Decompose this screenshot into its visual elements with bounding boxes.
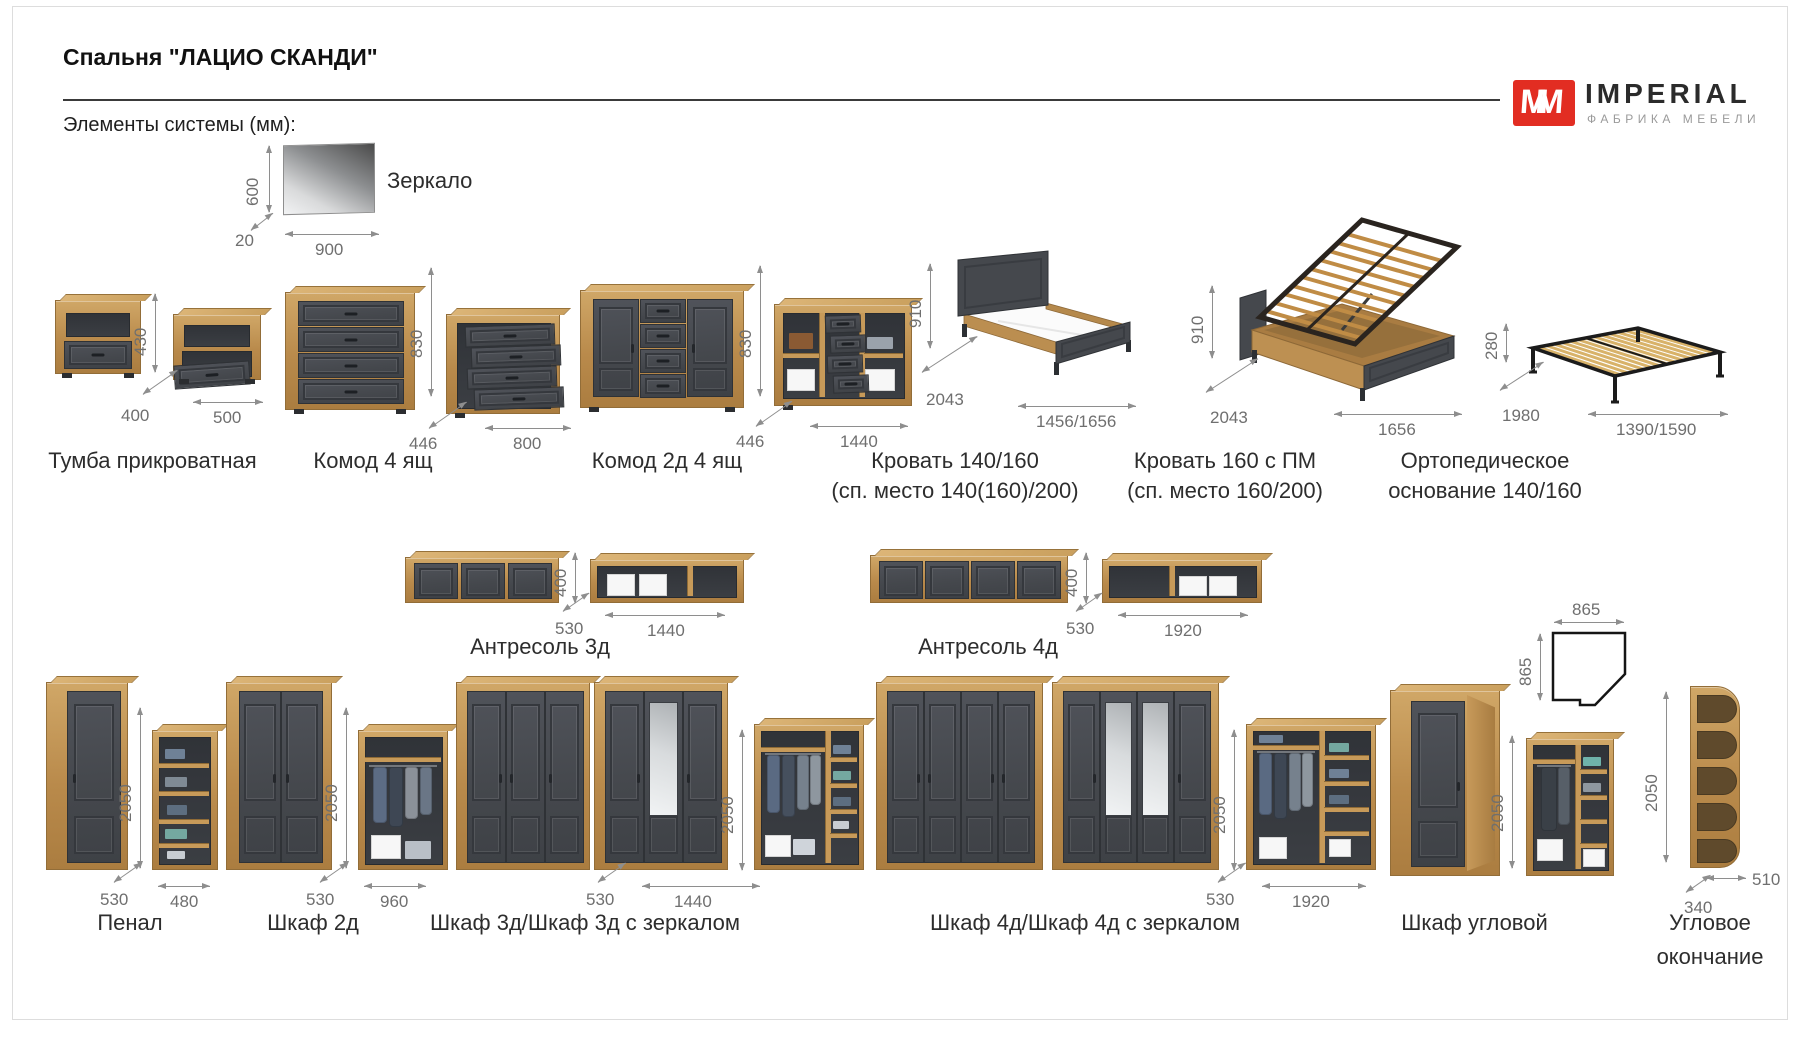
nightstand-d-dim: 400 <box>121 406 149 426</box>
section-subtitle: Элементы системы (мм): <box>63 114 296 137</box>
wardrobe2-open-graphic <box>358 730 448 870</box>
bed140-h-dim: 910 <box>906 284 926 328</box>
wardrobe3-open-graphic <box>754 724 864 870</box>
mirror-d-dim: 20 <box>235 231 254 251</box>
shelf4-closed-graphic <box>870 555 1068 603</box>
orthobase-d-dim: 1980 <box>1502 406 1540 426</box>
mirror-label: Зеркало <box>387 168 472 194</box>
penal-w-dim: 480 <box>170 892 198 912</box>
shelf4-h-arrow <box>1086 553 1087 603</box>
dresser2d4-open-graphic <box>774 304 912 406</box>
dresser4-label: Комод 4 ящ <box>283 448 463 474</box>
wardrobe4-label: Шкаф 4д/Шкаф 4д с зеркалом <box>870 910 1300 936</box>
wardrobe3-closed-graphic <box>456 682 590 870</box>
dresser2d4-label: Комод 2д 4 ящ <box>572 448 762 474</box>
shelf3-h-dim: 400 <box>551 559 571 597</box>
logo-tagline: ФАБРИКА МЕБЕЛИ <box>1587 112 1760 126</box>
corner-planw-arrow <box>1554 622 1624 623</box>
orthobase-h-dim: 280 <box>1482 326 1502 360</box>
wardrobe2-h-arrow <box>346 708 347 868</box>
nightstand-d-arrow <box>143 370 178 395</box>
wardrobe2-h-dim: 2050 <box>322 758 342 822</box>
dresser2d4-w-arrow <box>810 426 908 427</box>
dresser2d4-closed-graphic <box>580 290 744 408</box>
bed140-sub-label: (сп. место 140(160)/200) <box>795 478 1115 504</box>
nightstand-label: Тумба прикроватная <box>35 448 270 474</box>
corner-open-graphic <box>1526 738 1614 876</box>
bed160pm-graphic <box>1222 202 1472 407</box>
corner-plan-graphic <box>1550 630 1628 708</box>
logo-mark-letters: MM <box>1519 83 1552 122</box>
bed140-label: Кровать 140/160 <box>810 448 1100 474</box>
item-dresser4: 830 446 800 <box>283 252 578 444</box>
bed160pm-h-arrow <box>1212 286 1213 358</box>
orthobase-h-arrow <box>1506 324 1507 362</box>
wardrobe4-h-arrow <box>1234 730 1235 870</box>
dresser4-closed-graphic <box>285 292 415 410</box>
nightstand-h-dim: 430 <box>131 312 151 356</box>
corner-pland-dim: 865 <box>1516 648 1536 686</box>
corner-planw-dim: 865 <box>1572 600 1600 620</box>
corner-pland-arrow <box>1540 634 1541 700</box>
item-shelf4: 400 530 1920 <box>868 545 1278 635</box>
dresser4-h-dim: 830 <box>407 308 427 358</box>
nightstand-w-dim: 500 <box>213 408 241 428</box>
shelf4-h-dim: 400 <box>1062 559 1082 597</box>
cornerend-label-line2: окончание <box>1625 944 1795 970</box>
item-mirror: 600 20 900 Зеркало <box>235 142 490 254</box>
wardrobe2-w-dim: 960 <box>380 892 408 912</box>
wardrobe3-h-arrow <box>742 730 743 870</box>
shelf3-w-dim: 1440 <box>647 621 685 641</box>
orthobase-label-line2: основание 140/160 <box>1355 478 1615 504</box>
orthobase-w-arrow <box>1588 414 1728 415</box>
corner-h-arrow <box>1512 736 1513 868</box>
item-nightstand: 430 400 500 <box>55 288 315 438</box>
cornerend-w-dim: 510 <box>1752 870 1780 890</box>
wardrobe4-open-graphic <box>1246 724 1376 870</box>
penal-label: Пенал <box>40 910 220 936</box>
bed140-w-arrow <box>1018 406 1136 407</box>
bed160pm-h-dim: 910 <box>1188 300 1208 344</box>
orthobase-graphic <box>1518 310 1733 418</box>
wardrobe3-h-dim: 2050 <box>718 770 738 834</box>
bed160pm-sub-label: (сп. место 160/200) <box>1090 478 1360 504</box>
item-wardrobe2: 2050 530 960 <box>222 678 457 916</box>
mirror-d-arrow <box>251 213 274 231</box>
corner-label: Шкаф угловой <box>1352 910 1597 936</box>
cornerend-h-arrow <box>1666 692 1667 862</box>
shelf4-w-arrow <box>1118 615 1248 616</box>
wardrobe4-h-dim: 2050 <box>1210 770 1230 834</box>
bed140-h-arrow <box>930 264 931 348</box>
penal-open-graphic <box>152 730 218 870</box>
wardrobe3-w-arrow <box>642 886 760 887</box>
wardrobe4-w-dim: 1920 <box>1292 892 1330 912</box>
cornerend-label-line1: Угловое <box>1625 910 1795 936</box>
wardrobe2-d-dim: 530 <box>306 890 334 910</box>
bed140-graphic <box>942 248 1157 386</box>
nightstand-open-graphic <box>173 314 261 380</box>
logo-brand-text: IMPERIAL <box>1585 78 1751 110</box>
mirror-h-dim: 600 <box>243 156 263 206</box>
penal-h-arrow <box>140 708 141 868</box>
wardrobe2-label: Шкаф 2д <box>228 910 398 936</box>
nightstand-w-arrow <box>193 402 263 403</box>
corner-h-dim: 2050 <box>1488 768 1508 832</box>
cornerend-graphic <box>1690 686 1740 868</box>
dresser2d4-h-arrow <box>760 266 761 396</box>
orthobase-label-line1: Ортопедическое <box>1355 448 1615 474</box>
item-shelf3: 400 530 1440 <box>403 545 788 635</box>
cornerend-w-arrow <box>1706 878 1746 879</box>
item-bed140: 910 2043 1456/1656 <box>900 232 1198 440</box>
catalog-page: Спальня "ЛАЦИО СКАНДИ" MM IMPERIAL ФАБРИ… <box>0 0 1800 1042</box>
bed160pm-label: Кровать 160 с ПМ <box>1090 448 1360 474</box>
bed140-w-dim: 1456/1656 <box>1036 412 1116 432</box>
shelf3-closed-graphic <box>405 557 559 603</box>
penal-h-dim: 2050 <box>116 758 136 822</box>
logo-mark-icon: MM <box>1513 80 1575 126</box>
item-wardrobe4: 2050 530 1920 <box>872 678 1380 916</box>
penal-w-arrow <box>158 886 210 887</box>
dresser4-w-dim: 800 <box>513 434 541 454</box>
wardrobe3-d-dim: 530 <box>586 890 614 910</box>
wardrobe2-closed-graphic <box>226 682 332 870</box>
cornerend-d-arrow <box>1686 875 1711 893</box>
dresser4-w-arrow <box>485 428 571 429</box>
shelf3-h-arrow <box>575 553 576 603</box>
bed140-d-dim: 2043 <box>926 390 964 410</box>
cornerend-h-dim: 2050 <box>1642 748 1662 812</box>
corner-closed-graphic <box>1390 690 1500 876</box>
mirror-graphic <box>283 143 375 215</box>
item-corner: 865 865 2050 <box>1382 598 1634 916</box>
item-penal: 2050 530 480 <box>38 678 223 916</box>
item-wardrobe3: 2050 530 1440 <box>452 678 870 916</box>
shelf4-w-dim: 1920 <box>1164 621 1202 641</box>
shelf4-label: Антресоль 4д <box>888 634 1088 660</box>
penal-d-dim: 530 <box>100 890 128 910</box>
title-divider <box>63 99 1500 101</box>
wardrobe4-d-dim: 530 <box>1206 890 1234 910</box>
bed160pm-w-dim: 1656 <box>1378 420 1416 440</box>
nightstand-h-arrow <box>155 294 156 372</box>
bed160pm-w-arrow <box>1334 414 1462 415</box>
item-orthobase: 280 1980 1390/1590 <box>1488 298 1793 440</box>
wardrobe4-mirror-graphic <box>1052 682 1219 870</box>
shelf3-w-arrow <box>605 615 725 616</box>
nightstand-closed-graphic <box>55 300 141 374</box>
item-bed160pm: 910 2043 1656 <box>1192 196 1500 440</box>
shelf3-open-graphic <box>590 559 744 603</box>
wardrobe2-w-arrow <box>364 886 426 887</box>
wardrobe3-mirror-graphic <box>594 682 728 870</box>
item-dresser2d4: 830 446 1440 <box>578 252 916 444</box>
bed160pm-d-dim: 2043 <box>1210 408 1248 428</box>
wardrobe3-w-dim: 1440 <box>674 892 712 912</box>
page-title: Спальня "ЛАЦИО СКАНДИ" <box>63 44 378 71</box>
wardrobe4-w-arrow <box>1262 886 1366 887</box>
wardrobe4-closed-graphic <box>876 682 1043 870</box>
shelf3-label: Антресоль 3д <box>440 634 640 660</box>
mirror-w-arrow <box>285 234 379 235</box>
shelf4-open-graphic <box>1102 559 1262 603</box>
orthobase-w-dim: 1390/1590 <box>1616 420 1696 440</box>
dresser2d4-h-dim: 830 <box>736 308 756 358</box>
dresser4-h-arrow <box>431 268 432 396</box>
wardrobe3-label: Шкаф 3д/Шкаф 3д с зеркалом <box>430 910 715 936</box>
brand-logo: MM IMPERIAL ФАБРИКА МЕБЕЛИ <box>1513 76 1745 134</box>
item-cornerend: 2050 510 340 <box>1648 678 1800 920</box>
mirror-h-arrow <box>269 146 270 212</box>
